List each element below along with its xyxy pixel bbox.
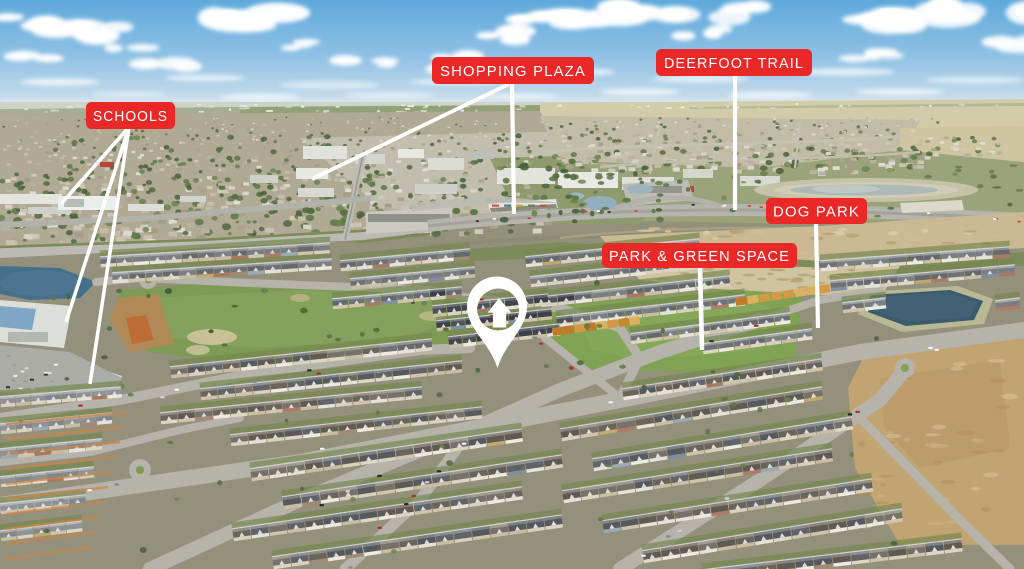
svg-text:SCHOOLS: SCHOOLS: [93, 108, 168, 125]
svg-text:SHOPPING PLAZA: SHOPPING PLAZA: [440, 63, 586, 80]
svg-text:PARK & GREEN SPACE: PARK & GREEN SPACE: [609, 248, 790, 265]
svg-text:DEERFOOT TRAIL: DEERFOOT TRAIL: [664, 55, 804, 72]
svg-text:DOG PARK: DOG PARK: [773, 203, 860, 220]
